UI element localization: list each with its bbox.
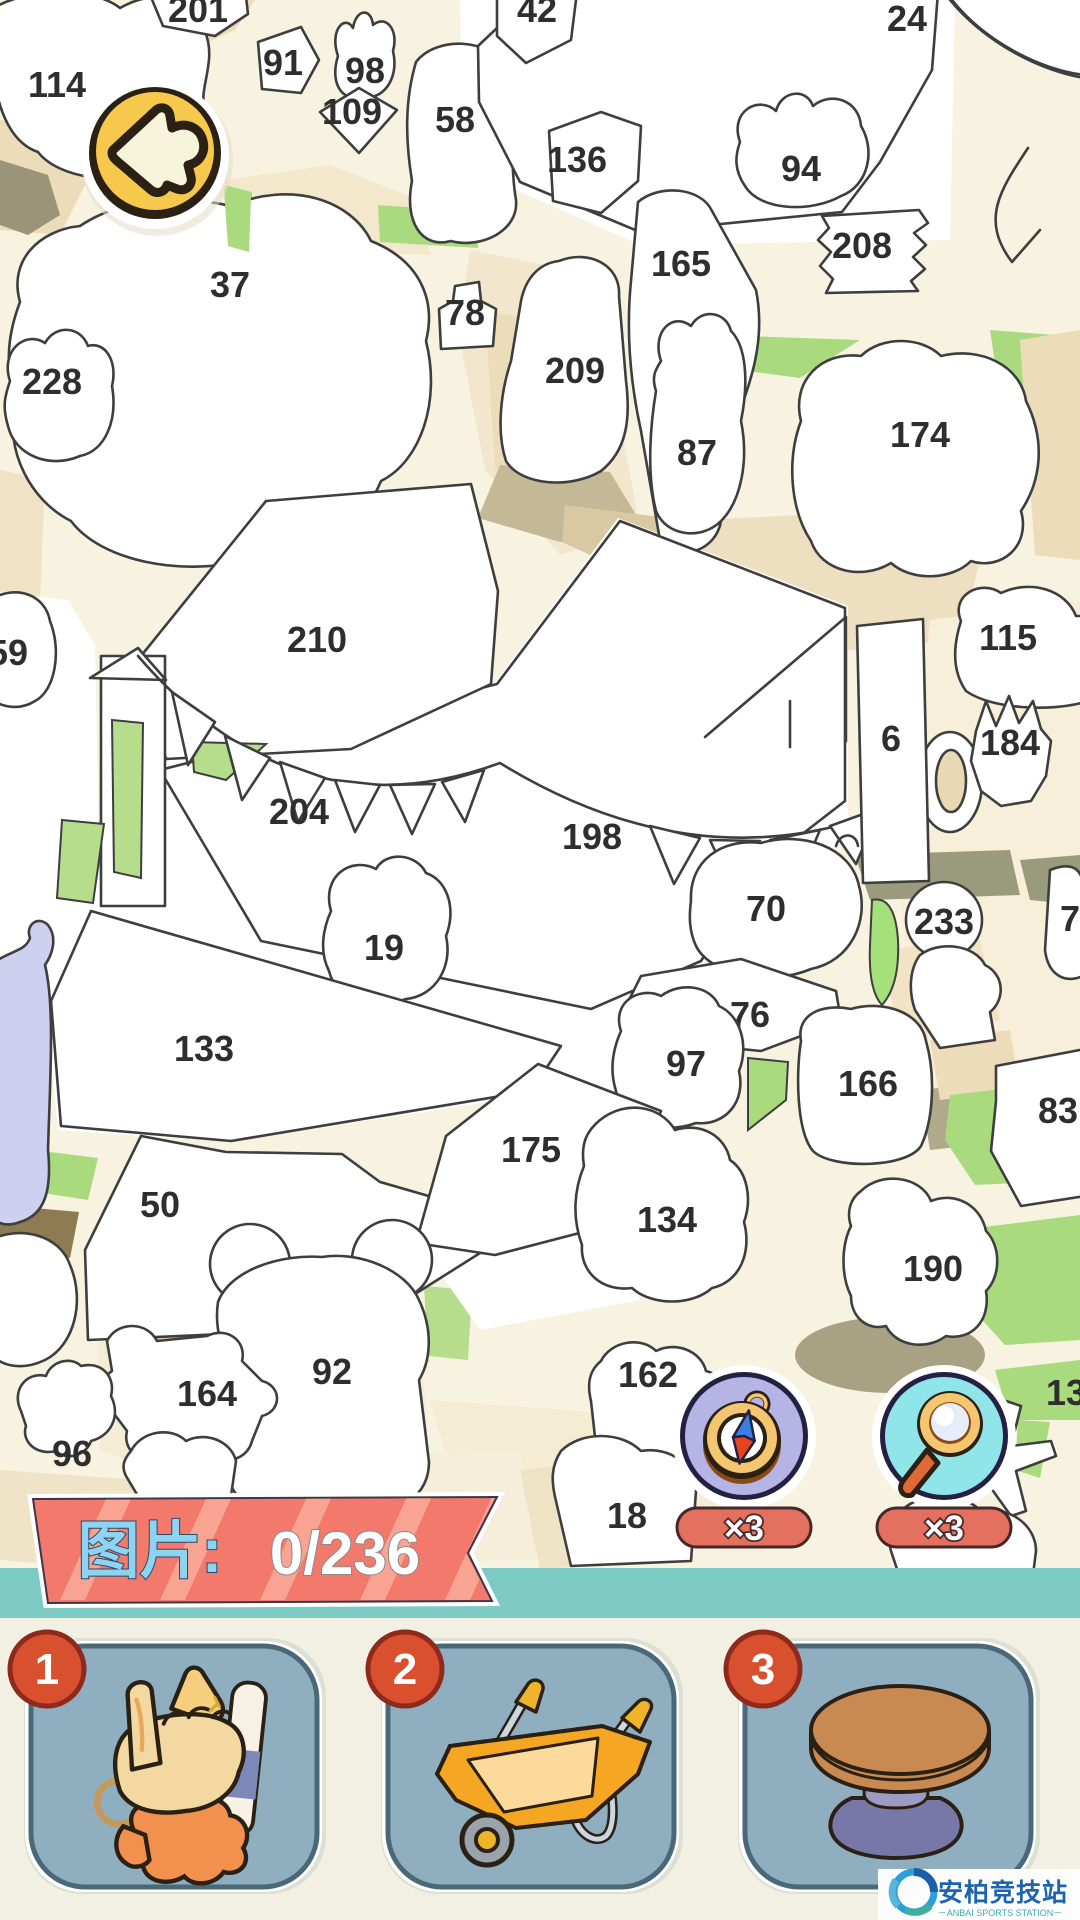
svg-text:204: 204	[269, 791, 329, 832]
svg-text:134: 134	[637, 1199, 697, 1240]
svg-text:1: 1	[35, 1645, 59, 1694]
svg-text:109: 109	[322, 91, 382, 132]
svg-text:19: 19	[364, 927, 404, 968]
svg-text:13: 13	[1046, 1372, 1080, 1413]
svg-text:94: 94	[781, 148, 821, 189]
svg-text:－ANBAI SPORTS STATION－: －ANBAI SPORTS STATION－	[938, 1908, 1063, 1918]
svg-text:87: 87	[677, 432, 717, 473]
svg-text:78: 78	[445, 292, 485, 333]
svg-text:70: 70	[746, 888, 786, 929]
svg-text:233: 233	[914, 901, 974, 942]
svg-text:92: 92	[312, 1351, 352, 1392]
svg-text:96: 96	[52, 1433, 92, 1474]
svg-text:174: 174	[890, 414, 950, 455]
svg-text:18: 18	[607, 1495, 647, 1536]
svg-text:图片:: 图片:	[78, 1517, 223, 1586]
svg-text:133: 133	[174, 1028, 234, 1069]
svg-text:50: 50	[140, 1184, 180, 1225]
svg-text:175: 175	[501, 1129, 561, 1170]
svg-text:208: 208	[832, 225, 892, 266]
svg-text:0/236: 0/236	[270, 1520, 420, 1587]
svg-text:190: 190	[903, 1248, 963, 1289]
svg-text:59: 59	[0, 632, 28, 673]
svg-text:42: 42	[517, 0, 557, 30]
svg-text:162: 162	[618, 1354, 678, 1395]
svg-text:97: 97	[666, 1043, 706, 1084]
svg-text:安柏竞技站: 安柏竞技站	[938, 1878, 1068, 1907]
svg-text:2: 2	[393, 1645, 417, 1694]
svg-text:91: 91	[263, 42, 303, 83]
svg-text:×3: ×3	[924, 1509, 964, 1548]
svg-text:228: 228	[22, 361, 82, 402]
svg-text:136: 136	[547, 139, 607, 180]
svg-text:58: 58	[435, 99, 475, 140]
svg-text:198: 198	[562, 816, 622, 857]
svg-text:24: 24	[887, 0, 927, 39]
svg-text:165: 165	[651, 243, 711, 284]
svg-text:83: 83	[1038, 1090, 1078, 1131]
svg-text:3: 3	[751, 1645, 775, 1694]
svg-text:7: 7	[1060, 898, 1080, 939]
svg-text:114: 114	[28, 64, 86, 105]
svg-text:184: 184	[980, 722, 1040, 763]
svg-text:201: 201	[168, 0, 228, 30]
svg-text:166: 166	[838, 1063, 898, 1104]
svg-text:115: 115	[979, 617, 1037, 658]
svg-text:37: 37	[210, 264, 250, 305]
svg-text:98: 98	[345, 50, 385, 91]
svg-text:×3: ×3	[724, 1509, 764, 1548]
svg-text:6: 6	[881, 718, 901, 759]
svg-text:164: 164	[177, 1373, 237, 1414]
svg-text:209: 209	[545, 350, 605, 391]
svg-text:210: 210	[287, 619, 347, 660]
